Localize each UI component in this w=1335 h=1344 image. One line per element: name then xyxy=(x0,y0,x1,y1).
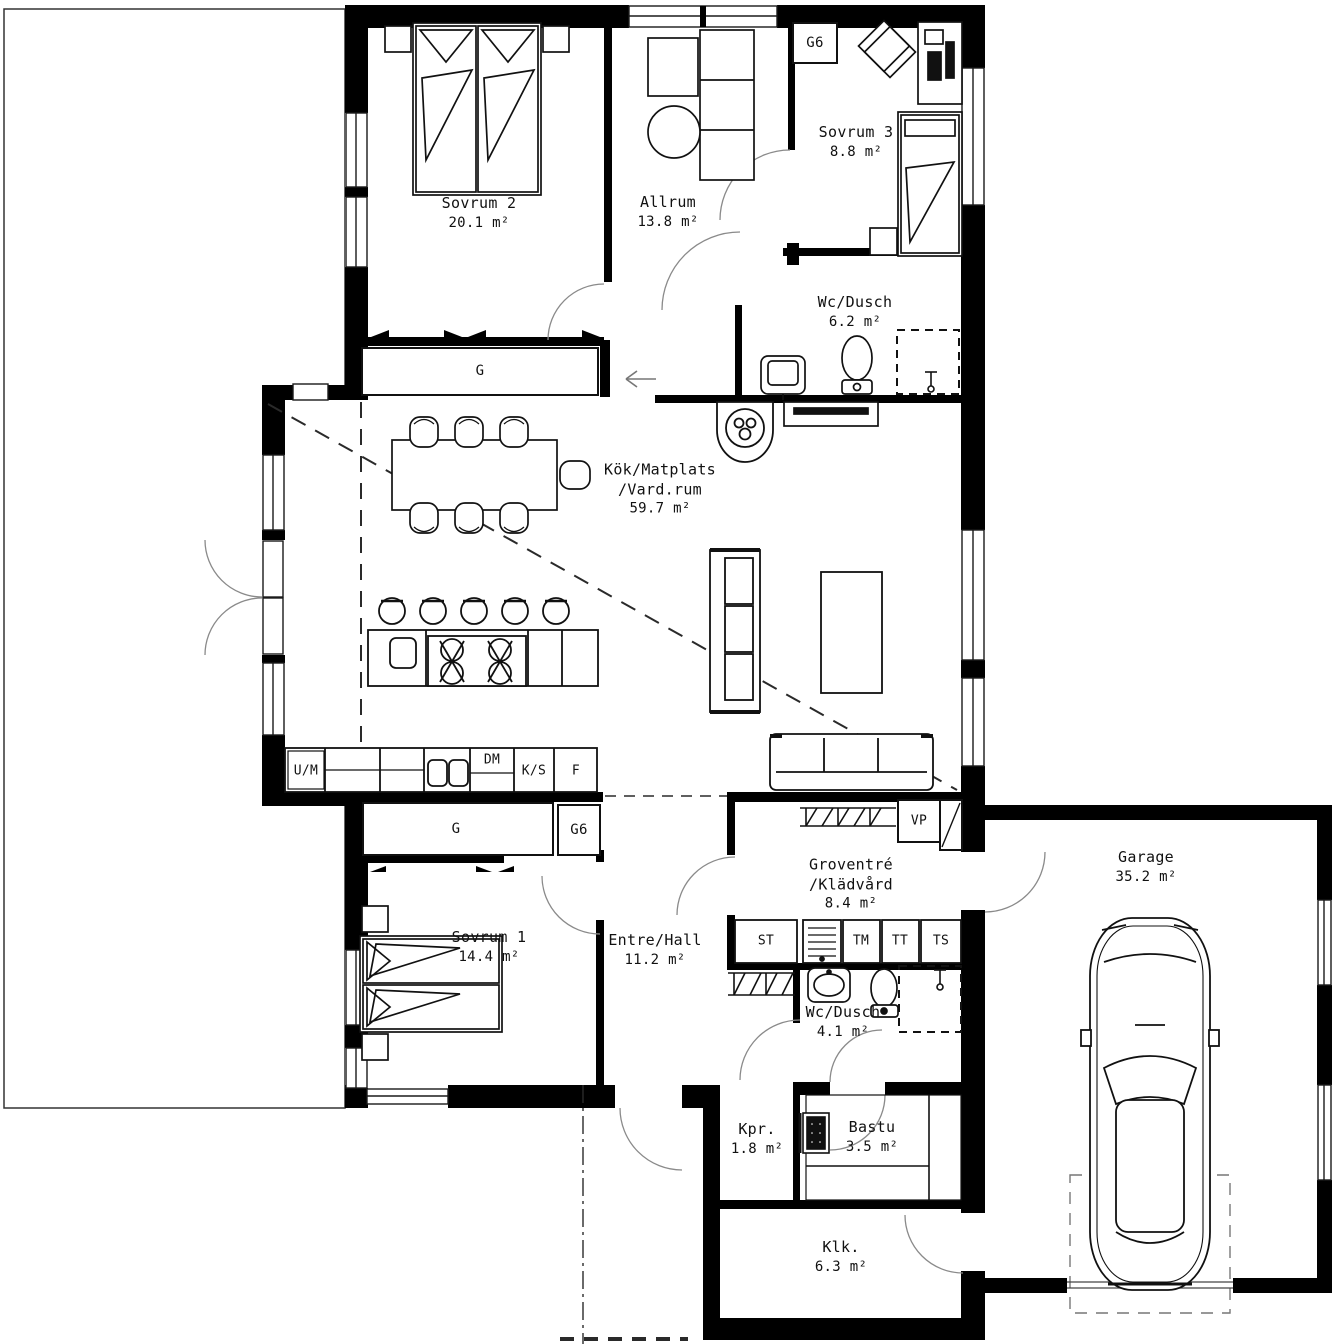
island-sink-icon xyxy=(390,638,416,668)
room-label-wc-dusch-bottom: Wc/Dusch4.1 m² xyxy=(806,1003,881,1041)
room-label-klk: Klk.6.3 m² xyxy=(815,1238,867,1276)
room-label-groventre: Groventré/Klädvård8.4 m² xyxy=(809,855,893,912)
car-mirror xyxy=(1209,1030,1219,1046)
media-bench-icon xyxy=(784,402,878,426)
fireplace-icon xyxy=(717,402,773,462)
kitchen-sink-icon xyxy=(449,760,468,786)
room-label-sovrum-3: Sovrum 38.8 m² xyxy=(819,123,894,161)
window-left-1 xyxy=(346,113,367,187)
label-ks: K/S xyxy=(522,764,546,779)
window-right-1 xyxy=(962,68,984,205)
kitchen-cabinets xyxy=(285,748,597,792)
window-right-2 xyxy=(962,530,984,660)
french-door-leaves xyxy=(263,541,283,654)
label-st: ST xyxy=(758,934,774,949)
window-garage-2 xyxy=(1318,1085,1331,1180)
floor-plan: Sovrum 220.1 m² Allrum13.8 m² Sovrum 38.… xyxy=(0,0,1335,1344)
label-wardrobe-g-upper: G xyxy=(476,363,485,379)
label-vp: VP xyxy=(911,814,927,829)
car-mirror xyxy=(1081,1030,1091,1046)
label-ts: TS xyxy=(933,934,949,949)
vent-window xyxy=(293,384,328,400)
kitchen-sink-icon xyxy=(428,760,447,786)
label-g6-hall: G6 xyxy=(570,822,587,838)
nightstand-icon xyxy=(362,1034,388,1060)
nightstand-icon xyxy=(543,26,569,52)
window-garage-1 xyxy=(1318,900,1331,985)
sovrum3-bed-icon xyxy=(898,112,962,256)
door-terrace-1 xyxy=(205,540,262,597)
nightstand-icon xyxy=(362,906,388,932)
room-label-sovrum-2: Sovrum 220.1 m² xyxy=(442,194,517,232)
cooktop-icon xyxy=(428,636,526,686)
room-label-sovrum-1: Sovrum 114.4 m² xyxy=(452,928,527,966)
room-label-kpr: Kpr.1.8 m² xyxy=(731,1120,783,1158)
label-tt: TT xyxy=(892,934,908,949)
washbasin-icon xyxy=(808,968,850,1002)
room-label-entre-hall: Entre/Hall11.2 m² xyxy=(608,931,701,969)
sauna-heater-icon xyxy=(800,1113,829,1153)
window-kitchen-1 xyxy=(263,455,284,530)
window-left-2 xyxy=(346,197,367,267)
window-top xyxy=(629,6,777,27)
label-f: F xyxy=(572,764,580,779)
room-label-garage: Garage35.2 m² xyxy=(1115,848,1176,886)
label-wardrobe-g-lower: G xyxy=(452,821,461,837)
label-g6-bedroom: G6 xyxy=(806,35,823,51)
washbasin-icon xyxy=(761,356,805,400)
nightstand-icon xyxy=(870,228,897,255)
label-tm: TM xyxy=(853,934,869,949)
toilet-icon xyxy=(842,336,872,394)
side-table-icon xyxy=(648,106,700,158)
window-sovrum1-south xyxy=(367,1089,448,1104)
car-icon xyxy=(1081,918,1219,1290)
nightstand-icon xyxy=(385,26,411,52)
kitchen-island-icon xyxy=(368,598,598,686)
sovrum2-bed-icon xyxy=(385,23,569,195)
desk-icon xyxy=(918,22,962,104)
sofa-icon xyxy=(770,734,933,790)
sofa-icon xyxy=(710,550,760,712)
window-right-3 xyxy=(962,678,984,766)
laundry-basket-icon xyxy=(803,920,841,963)
window-kitchen-2 xyxy=(263,663,284,735)
label-dm: DM xyxy=(484,753,500,768)
door-terrace-2 xyxy=(205,598,262,655)
room-label-kok: Kök/Matplats/Vard.rum59.7 m² xyxy=(604,460,716,517)
coffee-table-icon xyxy=(821,572,882,693)
room-label-wc-dusch-top: Wc/Dusch6.2 m² xyxy=(818,293,893,331)
room-label-bastu: Bastu3.5 m² xyxy=(846,1118,898,1156)
label-um: U/M xyxy=(294,764,318,779)
room-label-allrum: Allrum13.8 m² xyxy=(637,193,698,231)
door-back-entrance xyxy=(620,1108,682,1170)
